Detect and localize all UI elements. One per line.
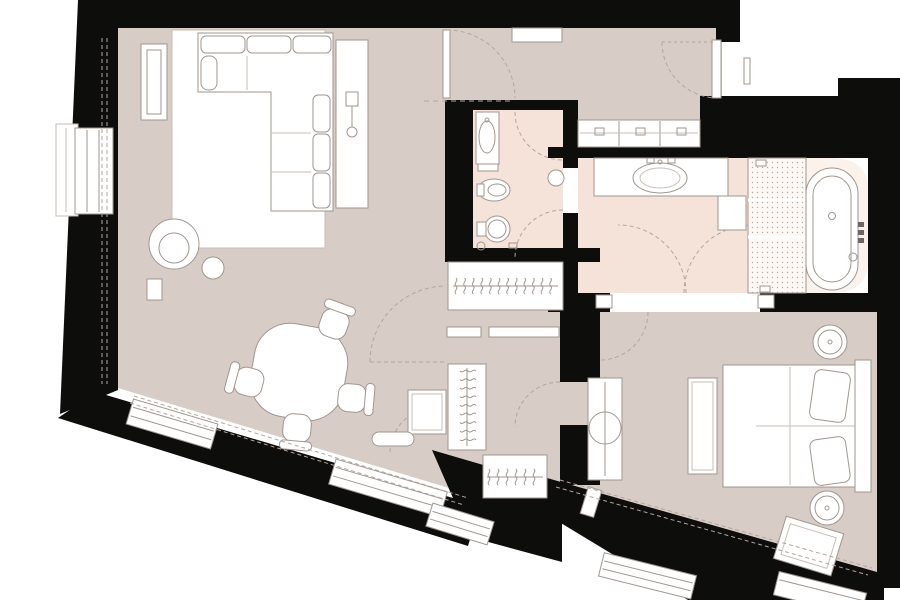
door-leaf-living-hall — [443, 30, 450, 98]
wall-top — [108, 0, 740, 28]
bathtub-fitting — [858, 230, 864, 235]
entry-shelf — [512, 28, 562, 42]
wall-entry-band — [700, 96, 877, 155]
sofa-cushion — [313, 134, 330, 171]
chair-seat — [337, 383, 367, 413]
slide-track — [447, 327, 481, 337]
radiator-living-inner — [147, 50, 161, 114]
bed-pillow — [809, 436, 851, 487]
floor-lamp-base — [347, 127, 357, 137]
door-opening-wc — [563, 168, 578, 213]
door-handle-entry — [744, 58, 750, 84]
wall-wc-bottom — [445, 248, 600, 262]
bed-headboard — [855, 360, 871, 492]
sofa-cushion — [313, 173, 330, 208]
bathtub-fitting — [858, 222, 864, 227]
desk — [408, 390, 446, 434]
wc-sconce — [548, 170, 564, 186]
bed-pillow — [809, 369, 852, 424]
sofa-cushion — [247, 36, 291, 53]
wall-bath-bedroom-b — [760, 293, 877, 312]
wall-hall-bath — [548, 147, 868, 158]
sofa-cushion — [293, 36, 331, 53]
wall-wc-right-a — [563, 100, 578, 168]
armchair — [149, 219, 199, 269]
bath-stool — [718, 196, 746, 230]
shower-drain — [760, 286, 770, 292]
toilet-cistern — [477, 222, 486, 236]
bidet-tap — [477, 184, 484, 196]
shower-floor — [748, 158, 806, 293]
floor-lamp-shade — [346, 92, 358, 106]
reading-lamp — [147, 279, 162, 300]
bathtub — [806, 168, 858, 290]
chair-seat — [282, 413, 312, 443]
wall-wc-left — [445, 100, 473, 258]
wc-shelf — [478, 164, 498, 171]
floor-plan-svg — [0, 0, 900, 600]
dining-chair — [337, 381, 376, 416]
sofa-cushion — [201, 36, 245, 53]
shower-head — [756, 160, 766, 166]
sofa-cushion — [313, 95, 330, 132]
slide-track — [489, 327, 559, 337]
bathtub-fitting — [858, 238, 864, 243]
side-table — [202, 257, 224, 279]
wall-right-bedroom — [877, 310, 900, 588]
door-leaf-entry — [712, 40, 721, 98]
wall-bedroom-left-a — [560, 312, 600, 382]
door-leaf-bath-left — [596, 295, 612, 308]
sofa-bolster — [201, 56, 217, 90]
floor-plan-layers — [56, 0, 900, 600]
door-leaf-bath-right — [758, 295, 774, 308]
wall-shelf — [372, 432, 414, 446]
floor-plan-page — [0, 0, 900, 600]
